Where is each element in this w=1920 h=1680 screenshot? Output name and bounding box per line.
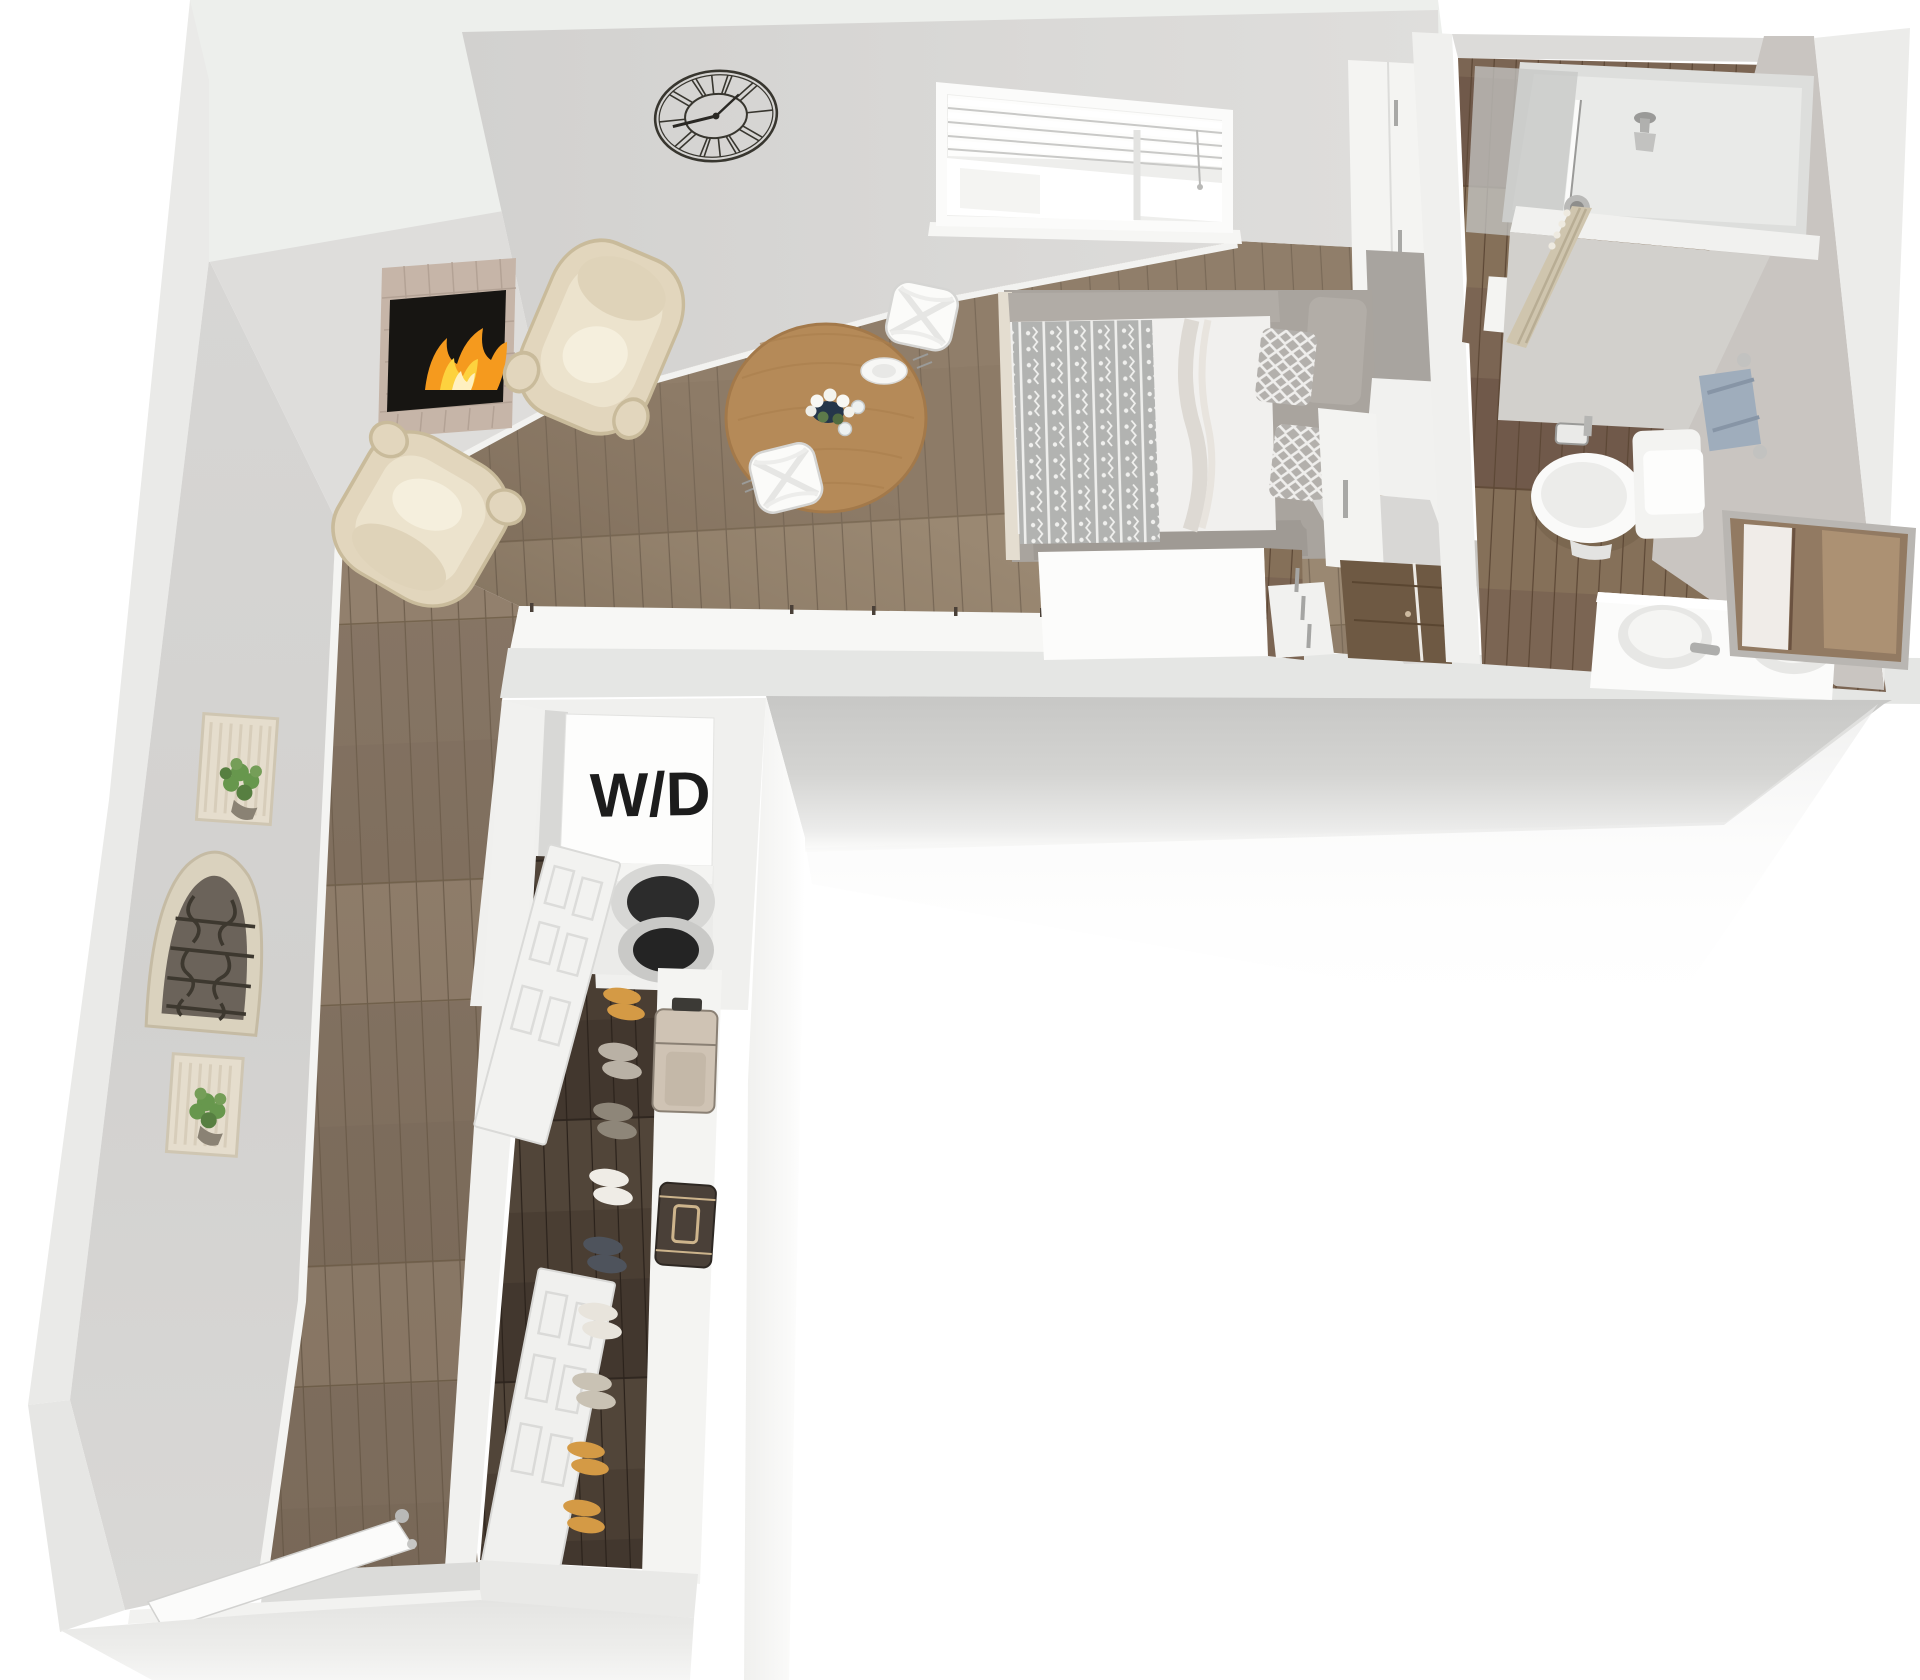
svg-text:W/D: W/D bbox=[589, 760, 711, 831]
